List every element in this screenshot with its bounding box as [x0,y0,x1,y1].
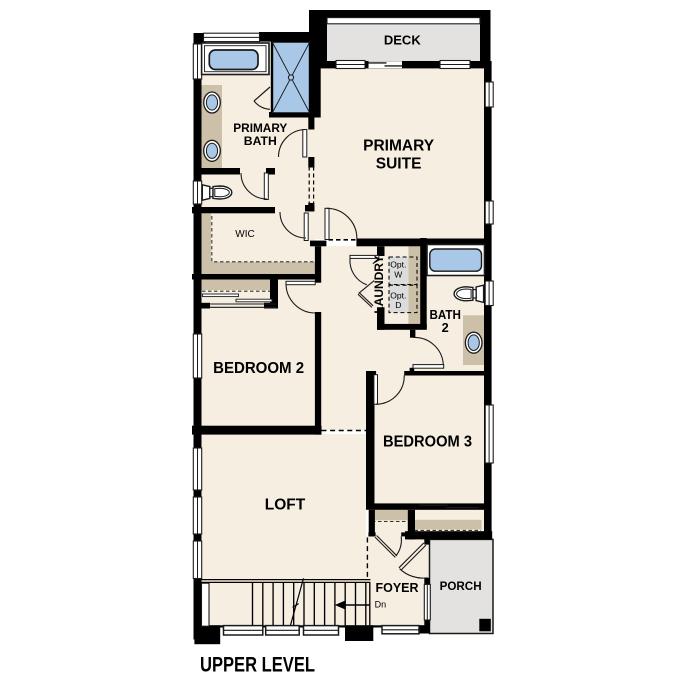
svg-text:PORCH: PORCH [440,579,482,593]
svg-text:SUITE: SUITE [376,156,422,173]
svg-text:WIC: WIC [235,229,254,240]
svg-text:BEDROOM 3: BEDROOM 3 [383,434,472,451]
svg-text:PRIMARY: PRIMARY [233,121,287,135]
svg-text:W: W [394,270,402,280]
svg-text:Opt.: Opt. [390,260,406,270]
svg-text:2: 2 [442,320,449,335]
svg-text:BATH: BATH [244,134,277,148]
svg-text:BEDROOM 2: BEDROOM 2 [213,360,304,377]
svg-text:D: D [395,300,401,310]
svg-text:LOFT: LOFT [265,497,306,514]
svg-text:LAUNDRY: LAUNDRY [372,255,386,313]
svg-text:UPPER LEVEL: UPPER LEVEL [200,654,315,677]
svg-text:PRIMARY: PRIMARY [363,138,435,155]
svg-text:Dn: Dn [375,600,387,610]
svg-text:DECK: DECK [384,32,421,47]
svg-text:FOYER: FOYER [376,581,419,595]
